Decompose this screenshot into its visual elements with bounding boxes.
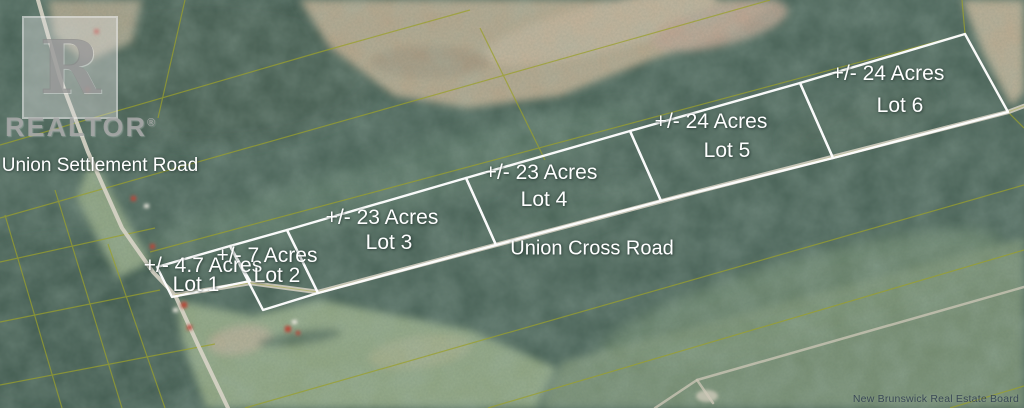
realtor-wordmark: REALTOR®: [5, 112, 155, 143]
lot-1-name-label: Lot 1: [173, 273, 220, 297]
union-settlement-road-label: Union Settlement Road: [2, 155, 198, 177]
registered-mark: ®: [147, 117, 155, 129]
lot-5-size-label: +/- 24 Acres: [655, 110, 768, 134]
union-cross-road-label: Union Cross Road: [510, 238, 673, 261]
attribution: New Brunswick Real Estate Board: [853, 393, 1019, 405]
aerial-lot-map: R REALTOR® Union Settlement Road Union C…: [0, 0, 1024, 408]
realtor-logo-letter: R: [39, 31, 101, 105]
lot-3-name-label: Lot 3: [366, 231, 413, 255]
lot-4-name-label: Lot 4: [521, 188, 568, 212]
lot-6-size-label: +/- 24 Acres: [832, 62, 945, 86]
lot-6-name-label: Lot 6: [877, 94, 924, 118]
realtor-logo-square: R: [22, 16, 118, 119]
lot-2-name-label: Lot 2: [254, 264, 301, 288]
lot-5-name-label: Lot 5: [704, 139, 751, 163]
lot-3-size-label: +/- 23 Acres: [326, 206, 439, 230]
lot-4-size-label: +/- 23 Acres: [485, 161, 598, 185]
